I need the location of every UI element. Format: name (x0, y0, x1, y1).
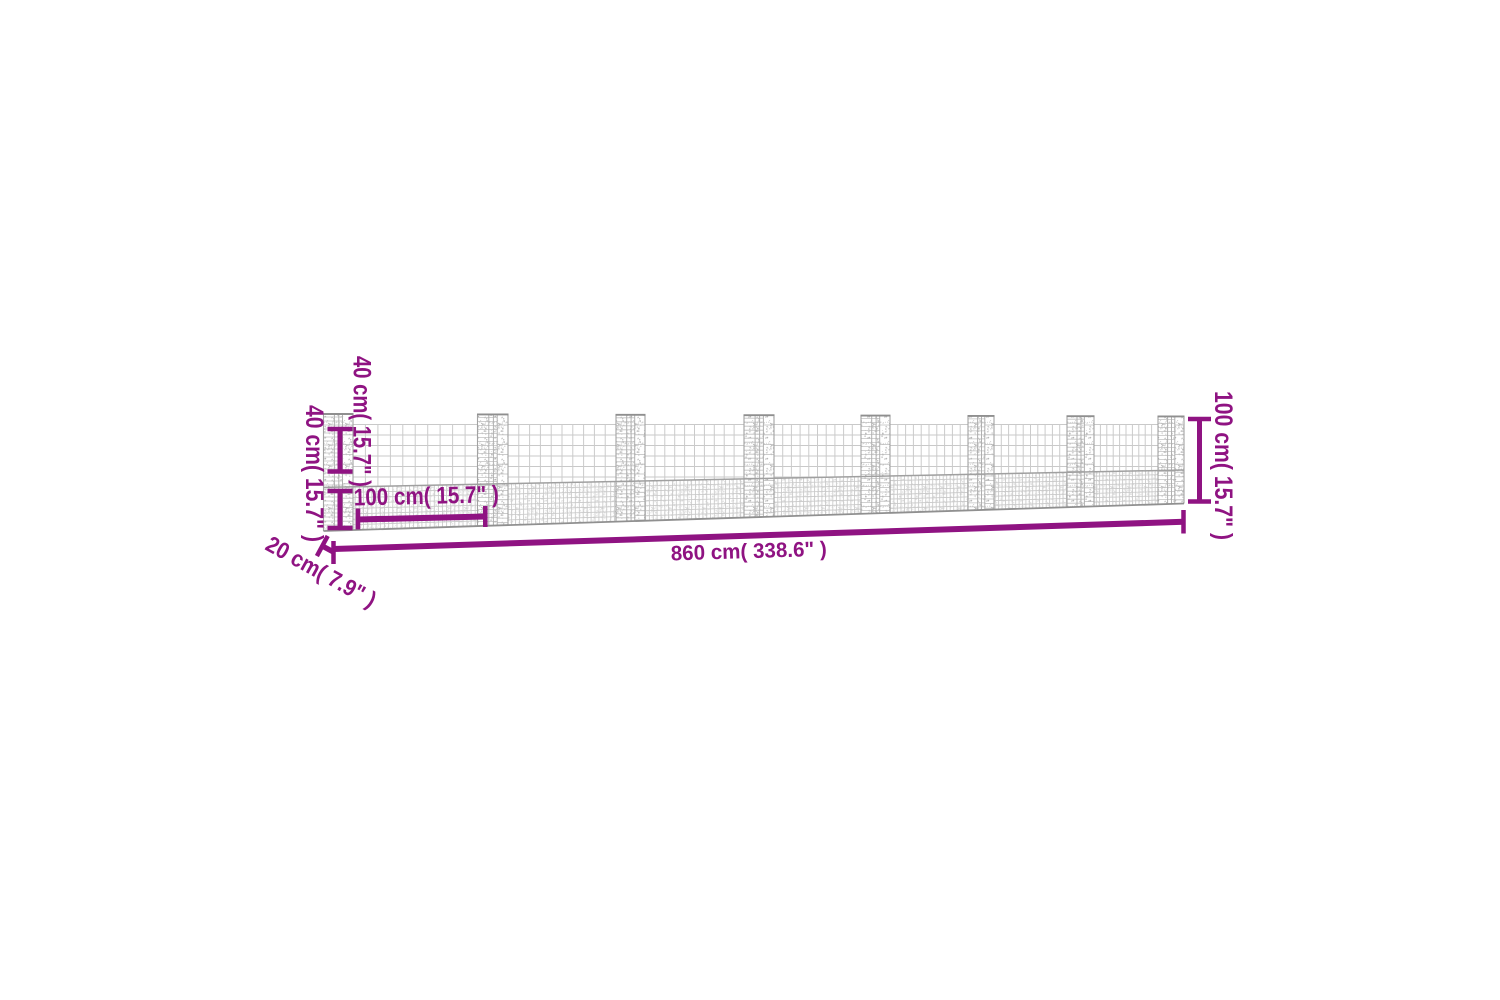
svg-text:860 cm( 338.6" ): 860 cm( 338.6" ) (670, 538, 827, 566)
svg-text:40 cm( 15.7" ): 40 cm( 15.7" ) (348, 356, 376, 487)
svg-text:100 cm( 15.7" ): 100 cm( 15.7" ) (1209, 391, 1237, 540)
svg-text:100 cm( 15.7" ): 100 cm( 15.7" ) (354, 481, 500, 511)
svg-text:40 cm( 15.7" ): 40 cm( 15.7" ) (300, 405, 328, 542)
